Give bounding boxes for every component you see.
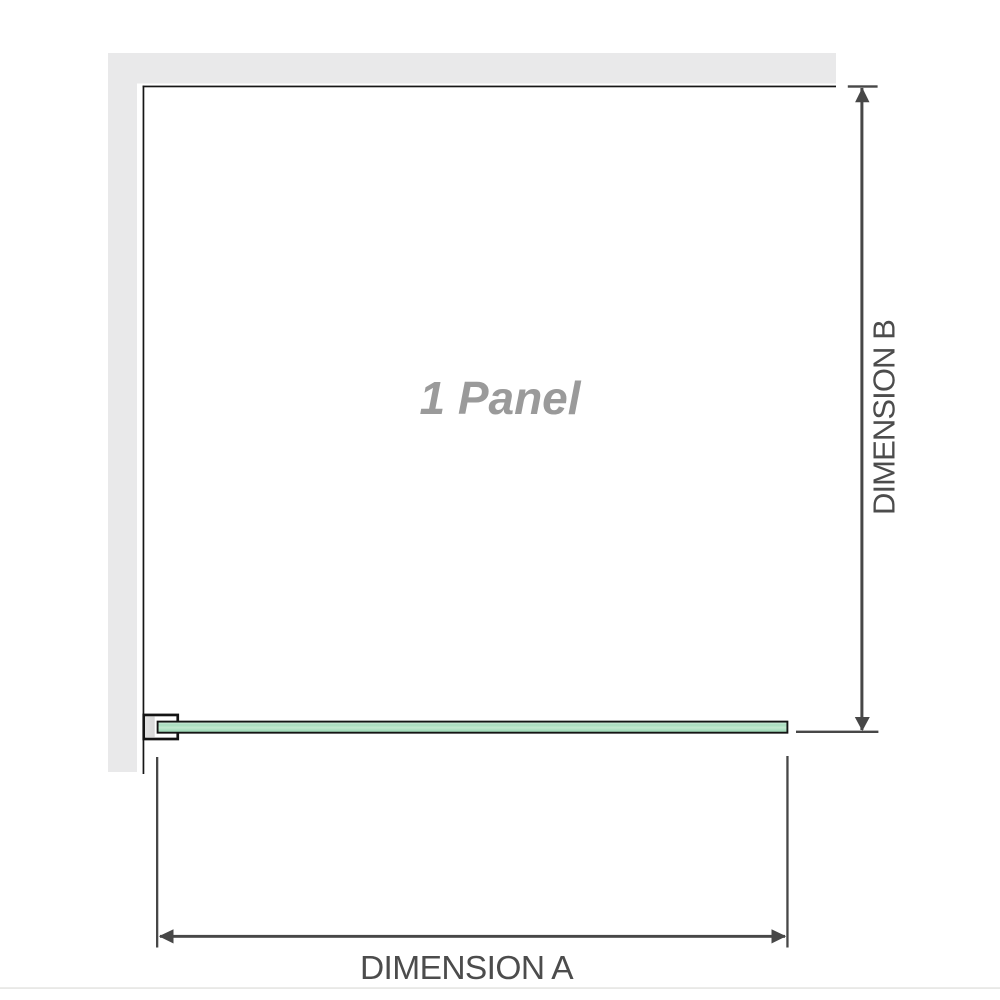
svg-text:DIMENSION B: DIMENSION B — [867, 320, 902, 515]
svg-text:1 Panel: 1 Panel — [419, 372, 581, 424]
svg-text:DIMENSION A: DIMENSION A — [360, 950, 574, 987]
